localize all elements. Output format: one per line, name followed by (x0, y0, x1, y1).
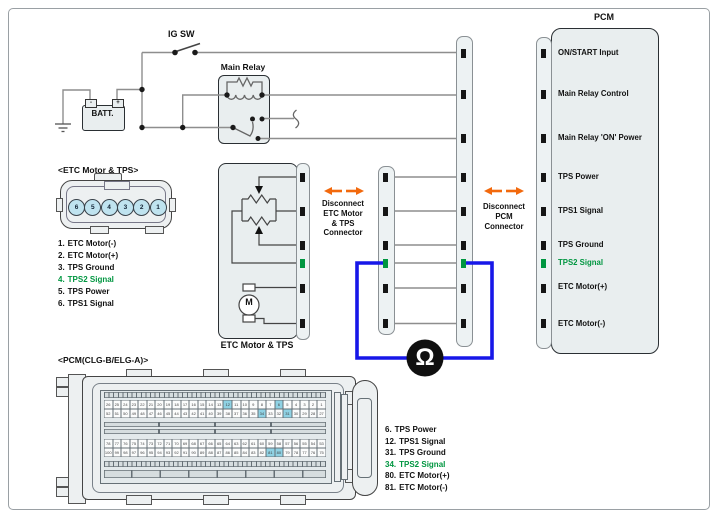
pcm-pin-cell: 72 (155, 439, 164, 448)
callout-line: Connector (464, 222, 544, 232)
pcm-pin-cell: 97 (130, 448, 139, 457)
pcm-connector-tick-strip (104, 392, 326, 398)
connector-pin (461, 173, 466, 182)
pcm-pin-cell: 67 (198, 439, 207, 448)
main-relay-box (218, 75, 270, 144)
pcm-pin-cell: 16 (189, 400, 198, 409)
battery-plus-terminal: + (112, 99, 124, 108)
pcm-pin-cell: 9 (249, 400, 258, 409)
pcm-pin-cell: 62 (241, 439, 250, 448)
pcm-pin-cell: 47 (147, 409, 156, 418)
connector-pin (461, 319, 466, 328)
connector-pin (383, 319, 388, 328)
pcm-pin-cell: 29 (300, 409, 309, 418)
pin-list-item: 1.ETC Motor(-) (58, 238, 118, 250)
connector-pin (461, 90, 466, 99)
callout-line: Disconnect (464, 202, 544, 212)
pcm-pin-cell: 55 (300, 439, 309, 448)
pcm-pin-cell: 83 (249, 448, 258, 457)
cavity-6: 6 (68, 199, 85, 216)
pin-list-item: 80.ETC Motor(+) (385, 470, 450, 482)
callout-line: ETC Motor (303, 209, 383, 219)
pcm-pin-cell: 17 (181, 400, 190, 409)
pcm-pin-cell: 49 (130, 409, 139, 418)
pcm-pin-cell: 35 (249, 409, 258, 418)
etc-motor-tps-box-label: ETC Motor & TPS (210, 340, 304, 350)
pcm-pin-cell-highlight: 31 (283, 409, 292, 418)
callout-line: & TPS (303, 219, 383, 229)
pcm-pin-cell: 66 (206, 439, 215, 448)
pcm-row-label: Main Relay Control (558, 88, 629, 99)
pcm-pin-cell: 100 (104, 448, 113, 457)
connector-pin (541, 90, 546, 99)
wiring-diagram: - + BATT. Main Relay ETC Motor & TPS PCM (0, 0, 719, 518)
pcm-pin-cell: 18 (172, 400, 181, 409)
pcm-pin-cell: 87 (215, 448, 224, 457)
pcm-pin-cell: 63 (232, 439, 241, 448)
battery-minus-terminal: - (85, 99, 97, 108)
connector-pin (383, 241, 388, 250)
pcm-pin-cell: 48 (138, 409, 147, 418)
pcm-pin-cell: 5 (283, 400, 292, 409)
cavity-4: 4 (101, 199, 118, 216)
callout-line: PCM (464, 212, 544, 222)
pcm-pin-cell: 39 (215, 409, 224, 418)
pcm-pin-cell: 32 (275, 409, 284, 418)
pcm-pin-cell: 79 (283, 448, 292, 457)
battery-label: BATT. (82, 109, 123, 118)
pcm-pin-cell: 37 (232, 409, 241, 418)
pcm-connector-title: <PCM(CLG-B/ELG-A)> (58, 355, 148, 365)
pcm-connector-rail (334, 392, 341, 482)
pcm-pin-cell: 64 (223, 439, 232, 448)
connector-pin (541, 319, 546, 328)
pcm-pin-cell: 28 (309, 409, 318, 418)
pcm-pin-row-1: 2625242322212019181716151413121110987654… (104, 400, 326, 409)
pcm-row-label: Main Relay 'ON' Power (558, 132, 642, 143)
pcm-row-label-tps2: TPS2 Signal (558, 257, 603, 268)
pcm-pin-cell: 42 (189, 409, 198, 418)
connector-pin-tps2 (383, 259, 388, 268)
pin-list-item: 6.TPS1 Signal (58, 298, 118, 310)
pcm-pin-cell: 44 (172, 409, 181, 418)
cavity-5: 5 (84, 199, 101, 216)
pcm-row-label: TPS Ground (558, 239, 603, 250)
pcm-pin-cell: 89 (198, 448, 207, 457)
pcm-pin-cell: 92 (172, 448, 181, 457)
pin-list-item-tps2: 34.TPS2 Signal (385, 459, 450, 471)
pcm-pin-cell: 40 (206, 409, 215, 418)
pcm-pin-cell: 58 (275, 439, 284, 448)
pcm-connector-endcap-slot (357, 398, 372, 478)
etc-component-connector-strip (296, 163, 310, 340)
pcm-pin-cell: 69 (181, 439, 190, 448)
connector-pin (300, 284, 305, 293)
connector-pin (461, 241, 466, 250)
pcm-pin-cell: 52 (104, 409, 113, 418)
pcm-pin-cell: 71 (164, 439, 173, 448)
etc-connector-ear (56, 198, 63, 212)
pin-list-item: 6.TPS Power (385, 424, 450, 436)
pcm-pin-cell: 7 (266, 400, 275, 409)
connector-pin (461, 134, 466, 143)
pcm-pin-cell: 77 (113, 439, 122, 448)
pin-list-item-tps2: 4.TPS2 Signal (58, 274, 118, 286)
etc-connector-title: <ETC Motor & TPS> (58, 165, 138, 175)
pcm-pin-row-2: 5251504948474645444342414039383736353433… (104, 409, 326, 418)
pcm-connector-bottom-band (104, 470, 326, 478)
pcm-pin-cell: 50 (121, 409, 130, 418)
etc-connector-ear (169, 198, 176, 212)
etc-harness-connector-strip (378, 166, 395, 335)
motor-label: M (241, 297, 257, 307)
ohmmeter-symbol: Ω (405, 344, 445, 372)
connector-pin (383, 207, 388, 216)
pcm-connector-keyway-bar (104, 429, 326, 434)
pcm-pin-cell: 99 (113, 448, 122, 457)
pcm-pin-cell: 19 (164, 400, 173, 409)
connector-pin-tps2 (300, 259, 305, 268)
pin-list-item: 12.TPS1 Signal (385, 436, 450, 448)
pcm-pin-cell: 98 (121, 448, 130, 457)
pcm-pin-cell: 78 (104, 439, 113, 448)
pcm-pin-cell: 23 (130, 400, 139, 409)
pcm-pin-cell: 15 (198, 400, 207, 409)
pcm-pin-cell: 53 (317, 439, 326, 448)
connector-pin-tps2 (541, 259, 546, 268)
connector-pin-tps2 (461, 259, 466, 268)
pcm-pin-cell-highlight: 6 (275, 400, 284, 409)
pcm-pin-cell: 90 (189, 448, 198, 457)
pcm-pin-cell: 91 (181, 448, 190, 457)
connector-pin (300, 173, 305, 182)
pcm-pin-cell: 30 (292, 409, 301, 418)
pcm-pin-row-3: 7877767574737271706968676665646362616059… (104, 439, 326, 448)
pcm-pin-cell: 65 (215, 439, 224, 448)
pcm-pin-cell: 10 (241, 400, 250, 409)
pcm-pin-cell: 2 (309, 400, 318, 409)
pin-list-item: 81.ETC Motor(-) (385, 482, 450, 494)
pcm-pin-cell: 78 (292, 448, 301, 457)
cavity-3: 3 (117, 199, 134, 216)
pcm-pin-cell: 75 (130, 439, 139, 448)
pcm-pin-cell: 74 (138, 439, 147, 448)
pcm-pin-cell: 57 (283, 439, 292, 448)
pcm-pin-cell-highlight: 12 (223, 400, 232, 409)
pin-list-item: 31.TPS Ground (385, 447, 450, 459)
pcm-pin-row-4: 1009998979695949392919089888786858483828… (104, 448, 326, 457)
pcm-pin-cell: 75 (317, 448, 326, 457)
connector-pin (383, 284, 388, 293)
pin-list-item: 5.TPS Power (58, 286, 118, 298)
pcm-pin-cell: 54 (309, 439, 318, 448)
pcm-pin-cell: 27 (317, 409, 326, 418)
pcm-row-label: ON/START Input (558, 47, 619, 58)
pcm-pin-cell: 59 (266, 439, 275, 448)
pcm-pin-cell: 38 (223, 409, 232, 418)
pin-list-item: 2.ETC Motor(+) (58, 250, 118, 262)
pcm-pin-cell: 76 (309, 448, 318, 457)
connector-pin (541, 49, 546, 58)
pcm-pin-cell: 13 (215, 400, 224, 409)
pcm-pin-cell: 1 (317, 400, 326, 409)
pcm-pin-cell: 25 (113, 400, 122, 409)
pcm-connector-tab (126, 495, 152, 505)
pcm-row-label: ETC Motor(+) (558, 281, 607, 292)
pcm-pin-cell: 20 (155, 400, 164, 409)
pcm-row-label: TPS Power (558, 171, 599, 182)
callout-line: Disconnect (303, 199, 383, 209)
pcm-connector-keyway-bar (104, 422, 326, 427)
pcm-pin-cell: 26 (104, 400, 113, 409)
pcm-box (551, 28, 659, 354)
pcm-pin-cell: 11 (232, 400, 241, 409)
pcm-pin-cell: 82 (258, 448, 267, 457)
pcm-pin-cell: 46 (155, 409, 164, 418)
pcm-pin-cell: 94 (155, 448, 164, 457)
pcm-pin-cell: 61 (249, 439, 258, 448)
pcm-pin-cell: 77 (300, 448, 309, 457)
pcm-pin-cell: 4 (292, 400, 301, 409)
pcm-pin-cell: 3 (300, 400, 309, 409)
etc-pin-list: 1.ETC Motor(-) 2.ETC Motor(+) 3.TPS Grou… (58, 238, 118, 310)
pcm-pin-cell: 56 (292, 439, 301, 448)
connector-pin (541, 173, 546, 182)
connector-pin (383, 173, 388, 182)
pcm-pin-cell: 84 (241, 448, 250, 457)
disconnect-etc-callout: Disconnect ETC Motor & TPS Connector (303, 199, 383, 238)
pcm-pin-cell: 24 (121, 400, 130, 409)
pcm-pin-cell: 73 (147, 439, 156, 448)
pcm-pin-cell: 21 (147, 400, 156, 409)
pcm-row-label: ETC Motor(-) (558, 318, 605, 329)
pcm-pin-cell: 22 (138, 400, 147, 409)
pcm-pin-cell: 68 (189, 439, 198, 448)
pcm-harness-connector-strip (456, 36, 473, 347)
connector-pin (300, 241, 305, 250)
cavity-2: 2 (133, 199, 150, 216)
connector-pin (541, 284, 546, 293)
pcm-connector-tab (280, 495, 306, 505)
pcm-pin-cell: 86 (223, 448, 232, 457)
pcm-title: PCM (551, 12, 657, 22)
pcm-connector-tick-strip (104, 461, 326, 467)
pcm-pin-cell: 95 (147, 448, 156, 457)
pcm-connector-rail (341, 394, 348, 480)
pcm-pin-cell: 33 (266, 409, 275, 418)
connector-pin (461, 49, 466, 58)
pcm-pin-cell: 88 (206, 448, 215, 457)
etc-connector-foot (145, 226, 164, 234)
pcm-pin-cell: 60 (258, 439, 267, 448)
pcm-pin-cell-highlight: 34 (258, 409, 267, 418)
etc-connector-foot (90, 226, 109, 234)
disconnect-pcm-callout: Disconnect PCM Connector (464, 202, 544, 231)
pin-list-item: 3.TPS Ground (58, 262, 118, 274)
pcm-pin-cell: 51 (113, 409, 122, 418)
pcm-pin-cell: 43 (181, 409, 190, 418)
pcm-pin-cell: 96 (138, 448, 147, 457)
pcm-pin-cell: 36 (241, 409, 250, 418)
ig-switch-label: IG SW (168, 29, 195, 39)
cavity-1: 1 (150, 199, 167, 216)
pcm-pin-cell: 70 (172, 439, 181, 448)
pcm-pin-cell-highlight: 80 (275, 448, 284, 457)
pcm-row-label: TPS1 Signal (558, 205, 603, 216)
main-relay-label: Main Relay (210, 62, 276, 72)
connector-pin (300, 319, 305, 328)
pcm-pin-cell: 76 (121, 439, 130, 448)
connector-pin (541, 241, 546, 250)
connector-pin (461, 284, 466, 293)
etc-connector-latch (104, 181, 130, 190)
pcm-pin-cell: 8 (258, 400, 267, 409)
pcm-pin-cell: 45 (164, 409, 173, 418)
etc-motor-tps-box (218, 163, 298, 339)
pcm-connector-tab (203, 495, 229, 505)
pcm-pin-cell: 93 (164, 448, 173, 457)
callout-line: Connector (303, 228, 383, 238)
pcm-side-connector-strip (536, 37, 552, 349)
pcm-pin-cell: 14 (206, 400, 215, 409)
pcm-pin-cell: 41 (198, 409, 207, 418)
connector-pin (541, 134, 546, 143)
pcm-pin-cell: 85 (232, 448, 241, 457)
pcm-pin-list: 6.TPS Power 12.TPS1 Signal 31.TPS Ground… (385, 424, 450, 493)
pcm-pin-cell-highlight: 81 (266, 448, 275, 457)
